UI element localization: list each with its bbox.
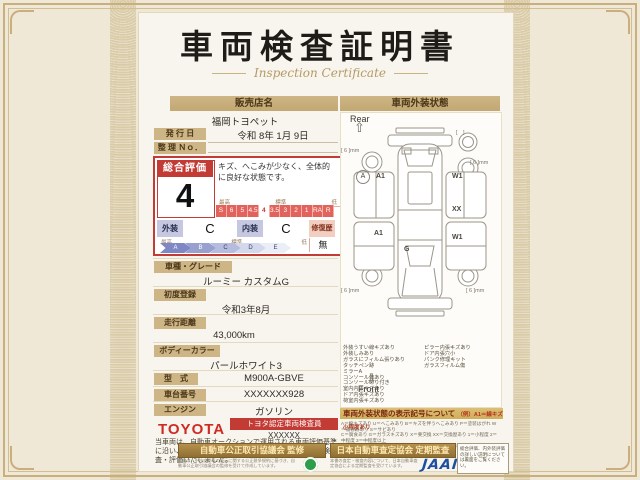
corner-ornament bbox=[10, 446, 34, 470]
page-title: 車両検査証明書 bbox=[150, 20, 490, 68]
legend-bar: 車両外装状態の表示記号について （例）A1＝線キズ小程度あり bbox=[340, 408, 503, 419]
tread-depth-rear-left: [ 6 ]mm bbox=[341, 148, 359, 154]
condition-item: ガラスフィルム傷 bbox=[424, 364, 500, 370]
condition-list-left: 外装うすい線キズあり 外装しみあり ガラスにフィルム張りあり タッチペン跡 ミラ… bbox=[343, 346, 423, 405]
jaai-note: 本書の査定・検査内容について、日本自動車査定協会による定期監査を受けています。 bbox=[330, 458, 418, 468]
jaai-logo: JAAI bbox=[421, 457, 459, 473]
subtitle-flourish bbox=[212, 73, 246, 74]
divider bbox=[153, 401, 338, 402]
dealer-header: 販売店名 bbox=[170, 96, 338, 111]
fair-trade-logo-icon bbox=[303, 457, 318, 472]
damage-marker-a1-upper: A1 bbox=[376, 173, 385, 180]
exterior-condition-header: 車両外装状態 bbox=[340, 96, 500, 111]
interior-grade: C bbox=[263, 220, 309, 237]
certified-inspector-badge: トヨタ認定車両検査員 bbox=[230, 418, 338, 430]
jaai-audit-badge: 日本自動車査定協会 定期監査 bbox=[330, 443, 456, 458]
damage-marker-g: G bbox=[404, 246, 409, 253]
grade-scale-cell: RA bbox=[313, 205, 324, 217]
overall-grade-label: 総合評価 bbox=[157, 160, 213, 177]
letter-scale-cell: A bbox=[160, 243, 191, 253]
ref-no-label: 整 理 Ｎｏ． bbox=[154, 142, 206, 154]
detail-value-mileage: 43,000km bbox=[154, 330, 314, 341]
detail-value-model-code: M900A-GBVE bbox=[210, 373, 338, 384]
grade-scale-cell: 3.5 bbox=[270, 205, 281, 217]
damage-marker-w1-lower: W1 bbox=[452, 234, 463, 241]
detail-label-engine: エンジン bbox=[154, 404, 206, 416]
certificate-page: 車両検査証明書 Inspection Certificate 販売店名 福岡トヨ… bbox=[0, 0, 640, 480]
grade-scale-cell: R bbox=[323, 205, 334, 217]
divider bbox=[153, 370, 338, 371]
detail-value-chassis-no: XXXXXXX928 bbox=[210, 389, 338, 400]
detail-label-body-color: ボディーカラー bbox=[154, 345, 220, 357]
subtitle-text: Inspection Certificate bbox=[254, 66, 386, 80]
divider bbox=[153, 386, 338, 387]
spare-tire-label: [ ] bbox=[456, 128, 465, 136]
fair-trade-council-badge: 自動車公正取引協議会 監修 bbox=[178, 443, 326, 458]
divider bbox=[153, 286, 338, 287]
evaluation-comment: キズ、へこみが少なく、全体的に良好な状態です。 bbox=[218, 161, 334, 195]
interior-label: 内装 bbox=[237, 220, 263, 237]
condition-list-right: ピラー内張キズあり ドア内張穴小 パンク修理キット ガラスフィルム傷 bbox=[424, 346, 500, 370]
grade-scale: S 6 5 4.5 4 3.5 3 2 1 RA R bbox=[216, 205, 334, 217]
tread-depth-rear-right: [ 6 ]mm bbox=[470, 160, 488, 166]
exterior-label: 外装 bbox=[157, 220, 183, 237]
legend-title: 車両外装状態の表示記号について bbox=[343, 409, 455, 418]
divider bbox=[153, 342, 338, 343]
detail-label-mileage: 走行距離 bbox=[154, 317, 206, 329]
axis-low: 低 bbox=[301, 238, 307, 246]
damage-marker-xx: XX bbox=[452, 206, 461, 213]
repair-history-label: 修復歴 bbox=[309, 220, 335, 237]
condition-item: 荷室内張キズあり bbox=[343, 399, 423, 405]
grade-scale-cell: 6 bbox=[227, 205, 238, 217]
corner-ornament bbox=[606, 10, 630, 34]
page-subtitle: Inspection Certificate bbox=[150, 66, 490, 80]
damage-marker-a: A bbox=[356, 170, 370, 184]
fair-trade-note: 本書は、中古自動車の表示に関する公正競争規約に基づき、自動車公正取引協議会の監修… bbox=[178, 458, 298, 468]
issue-date-value: 令和 8年 1月 9日 bbox=[208, 128, 338, 143]
divider bbox=[153, 258, 338, 259]
detail-label-chassis-no: 車台番号 bbox=[154, 389, 206, 401]
grade-scale-cell: 1 bbox=[302, 205, 313, 217]
grade-scale-cell: S bbox=[216, 205, 227, 217]
grade-scale-cell: 4.5 bbox=[248, 205, 259, 217]
subtitle-flourish bbox=[394, 73, 428, 74]
divider bbox=[153, 314, 338, 315]
corner-ornament bbox=[10, 10, 34, 34]
legend-line: A＝線キズあり U＝へこみあり B＝キズを伴うへこみあり P＝塗装はがれ W＝補… bbox=[341, 421, 499, 432]
issue-date-label: 発 行 日 bbox=[154, 128, 206, 140]
grade-scale-cell: 5 bbox=[237, 205, 248, 217]
corner-ornament bbox=[606, 446, 630, 470]
back-page-note: 総合評価、内外装評価の詳しい説明については裏面をご覧ください。 bbox=[457, 443, 509, 474]
exterior-grade: C bbox=[183, 220, 237, 237]
detail-value-engine: ガソリン bbox=[210, 404, 338, 418]
dealer-name: 福岡トヨペット bbox=[152, 114, 338, 128]
damage-marker-w1-upper: W1 bbox=[452, 173, 463, 180]
grade-scale-cell: 2 bbox=[291, 205, 302, 217]
letter-scale: A B C D E bbox=[160, 243, 285, 253]
grade-scale-cell-selected: 4 bbox=[259, 205, 270, 217]
legend-line: C＝腐食あり G＝ガラスキズあり X＝要交換 XX＝交換歴あり 1＝小程度 2＝… bbox=[341, 432, 499, 443]
tread-depth-front-right: [ 6 ]mm bbox=[466, 288, 484, 294]
detail-label-model-code: 型 式 bbox=[154, 373, 198, 385]
left-lace-ornament bbox=[110, 0, 136, 480]
damage-marker-a1-lower: A1 bbox=[374, 230, 383, 237]
repair-history-value: 無 bbox=[309, 238, 336, 252]
detail-label-first-reg: 初度登録 bbox=[154, 289, 206, 301]
tread-depth-front-left: [ 6 ]mm bbox=[341, 288, 359, 294]
overall-grade-value: 4 bbox=[157, 176, 213, 216]
grade-scale-cell: 3 bbox=[280, 205, 291, 217]
toyota-logo: TOYOTA bbox=[158, 421, 225, 438]
detail-label-model: 車種・グレード bbox=[154, 261, 232, 273]
ref-no-value-line bbox=[208, 152, 338, 153]
